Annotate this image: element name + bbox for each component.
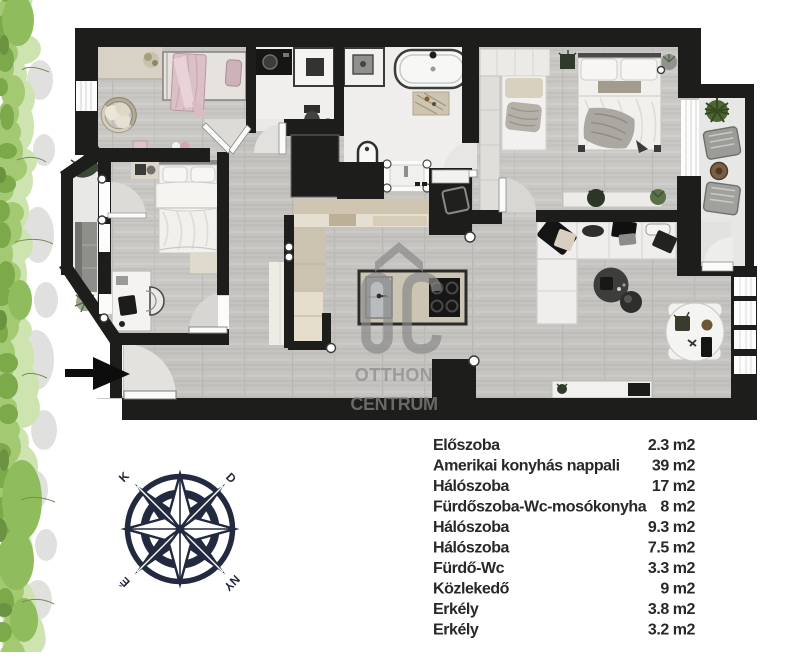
svg-text:Amerikai konyhás nappali: Amerikai konyhás nappali xyxy=(433,458,620,475)
svg-text:Hálószoba: Hálószoba xyxy=(433,540,510,557)
svg-text:Fürdő-Wc: Fürdő-Wc xyxy=(433,560,505,577)
svg-text:Hálószoba: Hálószoba xyxy=(433,519,510,536)
svg-text:39 m2: 39 m2 xyxy=(652,458,696,475)
svg-text:Hálószoba: Hálószoba xyxy=(433,478,510,495)
svg-text:9.3 m2: 9.3 m2 xyxy=(648,519,696,536)
svg-text:17 m2: 17 m2 xyxy=(652,478,696,495)
svg-text:Közlekedő: Közlekedő xyxy=(433,581,510,598)
svg-text:OTTHON: OTTHON xyxy=(355,365,433,385)
svg-text:3.3 m2: 3.3 m2 xyxy=(648,560,696,577)
svg-text:9 m2: 9 m2 xyxy=(660,581,695,598)
svg-text:3.2 m2: 3.2 m2 xyxy=(648,622,696,639)
svg-text:3.8 m2: 3.8 m2 xyxy=(648,601,696,618)
svg-text:8 m2: 8 m2 xyxy=(660,499,695,516)
svg-text:2.3 m2: 2.3 m2 xyxy=(648,437,696,454)
svg-text:Erkély: Erkély xyxy=(433,622,479,639)
svg-text:Fürdőszoba-Wc-mosókonyha: Fürdőszoba-Wc-mosókonyha xyxy=(433,499,647,516)
svg-text:Erkély: Erkély xyxy=(433,601,479,618)
svg-text:Előszoba: Előszoba xyxy=(433,437,500,454)
svg-text:7.5 m2: 7.5 m2 xyxy=(648,540,696,557)
svg-text:CENTRUM: CENTRUM xyxy=(350,394,437,414)
